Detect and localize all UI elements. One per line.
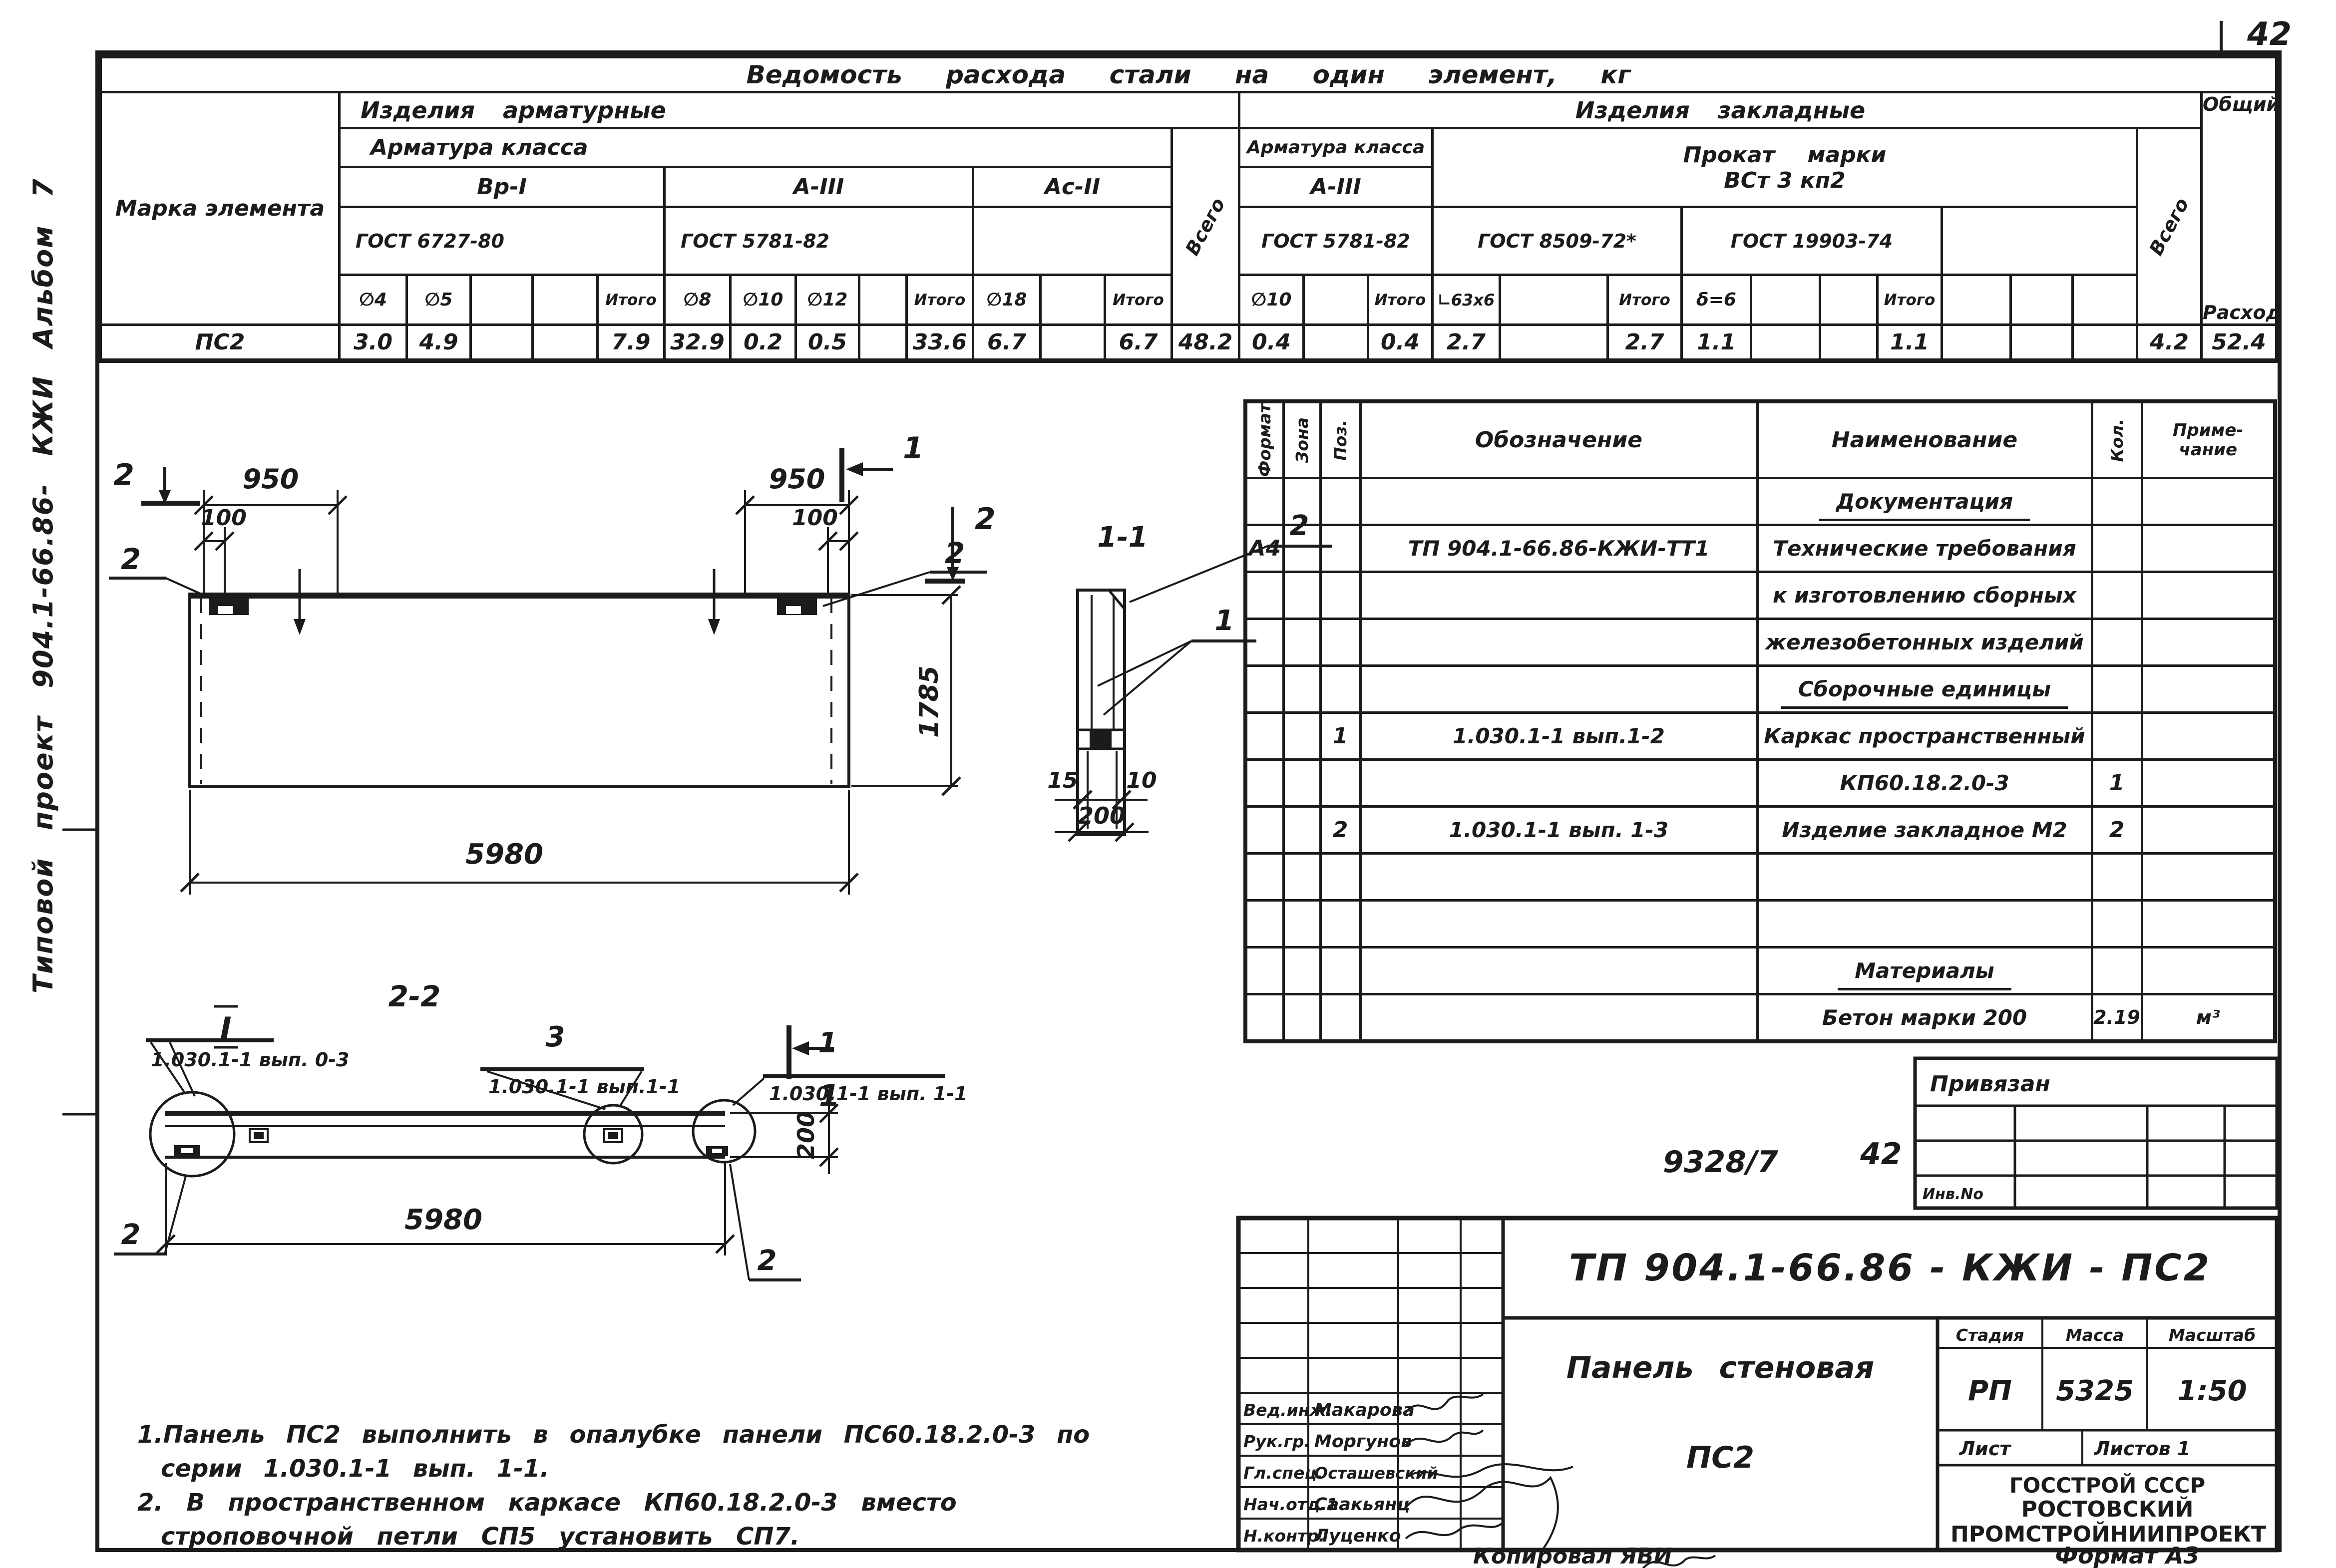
tb-sheet-label: Лист (1959, 1438, 2012, 1460)
tb-scale-label: Масштаб (2169, 1325, 2256, 1345)
copied-label: Копировал ЯВИ (1473, 1544, 1672, 1568)
s22-roman-I: I (220, 1010, 231, 1047)
note-line-4: строповочной петли СП5 установить СП7. (161, 1523, 799, 1551)
tb-sig5-name: Луценко (1314, 1526, 1401, 1546)
s11-dim-15: 15 (1047, 768, 1078, 793)
s22-dim-5980: 5980 (404, 1204, 482, 1236)
s22-flag-right: 1.030.1-1 вып. 1-1 (769, 1083, 968, 1105)
s22-flag-right-num: 1 (818, 1027, 838, 1059)
dim-950-left: 950 (243, 463, 299, 495)
inventory-label: Инв.No (1923, 1186, 1983, 1203)
dim-100-left: 100 (201, 505, 247, 531)
s22-flag-left: 1.030.1-1 вып. 0-3 (151, 1049, 350, 1071)
format-label: Формат А3 (2055, 1542, 2199, 1568)
s22-callout-bl: 2 (121, 1219, 141, 1251)
tb-stage: РП (1968, 1375, 2012, 1407)
margin-ticks (62, 830, 97, 1114)
side-project-text: Типовой проект 904.1-66.86- КЖИ Альбом 7 (27, 178, 59, 993)
cut2-label-right: 2 (975, 502, 996, 537)
tb-sig4-name: Саакьянц (1314, 1495, 1410, 1515)
signature-strokes (1406, 1394, 1715, 1568)
binding-label: Привязан (1930, 1071, 2050, 1097)
dim-5980-plan: 5980 (465, 838, 543, 871)
plan-callout-2-right: 2 (945, 536, 965, 570)
tb-sheets-label: Листов 1 (2094, 1438, 2191, 1460)
tb-stage-label: Стадия (1956, 1325, 2024, 1345)
tb-sig3-role: Гл.спец. (1243, 1463, 1323, 1483)
s22-callout-br: 2 (758, 1245, 777, 1277)
plan-callout-2-left: 2 (121, 542, 141, 576)
section-1-1-title: 1-1 (1097, 521, 1148, 554)
s11-callout-2: 2 (1290, 510, 1309, 542)
drawing-sheet: Ведомость расхода стали на один элемент,… (0, 0, 2336, 1568)
tb-org-2: РОСТОВСКИЙ (2021, 1496, 2194, 1522)
corner-sheet-number: 42 (2247, 16, 2292, 53)
tb-scale: 1:50 (2177, 1375, 2247, 1407)
s11-callout-1: 1 (1215, 605, 1234, 637)
tb-org-1: ГОССТРОЙ СССР (2009, 1473, 2205, 1498)
dim-1785: 1785 (914, 665, 944, 738)
section-2-2-title: 2-2 (389, 979, 441, 1013)
s11-dim-10: 10 (1126, 768, 1157, 793)
s22-flag-mid: 1.030.1-1 вып.1-1 (488, 1076, 680, 1098)
dim-950-right: 950 (769, 463, 825, 495)
note-line-1: 1.Панель ПС2 выполнить в опалубке панели… (137, 1421, 1090, 1449)
sheet-frame (97, 52, 2280, 1550)
s11-dim-200: 200 (1078, 802, 1126, 829)
cut2-label-left: 2 (113, 458, 134, 493)
doc-ref-number: 9328/7 (1663, 1145, 1778, 1180)
dim-100-right: 100 (792, 505, 838, 531)
s22-dim-200: 200 (792, 1111, 819, 1159)
tb-sig2-role: Рук.гр. (1243, 1432, 1310, 1451)
tb-sig1-name: Макарова (1314, 1400, 1415, 1420)
tb-sig5-role: Н.контр. (1243, 1526, 1325, 1546)
s22-flag-mid-num: 3 (546, 1021, 565, 1053)
note-line-2: серии 1.030.1-1 вып. 1-1. (161, 1455, 549, 1483)
plan-view (109, 448, 987, 1079)
sheet-ref-number: 42 (1860, 1137, 1902, 1172)
tb-product-mark: ПС2 (1686, 1440, 1754, 1475)
tb-doc-number: ТП 904.1-66.86 - КЖИ - ПС2 (1569, 1247, 2211, 1289)
tb-sig2-name: Моргунов (1314, 1432, 1412, 1452)
tb-mass-label: Масса (2066, 1325, 2124, 1345)
cut1-label-top: 1 (903, 431, 924, 466)
section-1-1 (1055, 546, 1332, 841)
note-line-3: 2. В пространственном каркасе КП60.18.2.… (137, 1489, 957, 1517)
tb-sig3-name: Осташевский (1314, 1464, 1438, 1483)
tb-product-name: Панель стеновая (1566, 1350, 1874, 1385)
drawing-linework: 42 Типовой проект 904.1-66.86- КЖИ Альбо… (0, 0, 2336, 1568)
tb-mass: 5325 (2056, 1375, 2134, 1407)
